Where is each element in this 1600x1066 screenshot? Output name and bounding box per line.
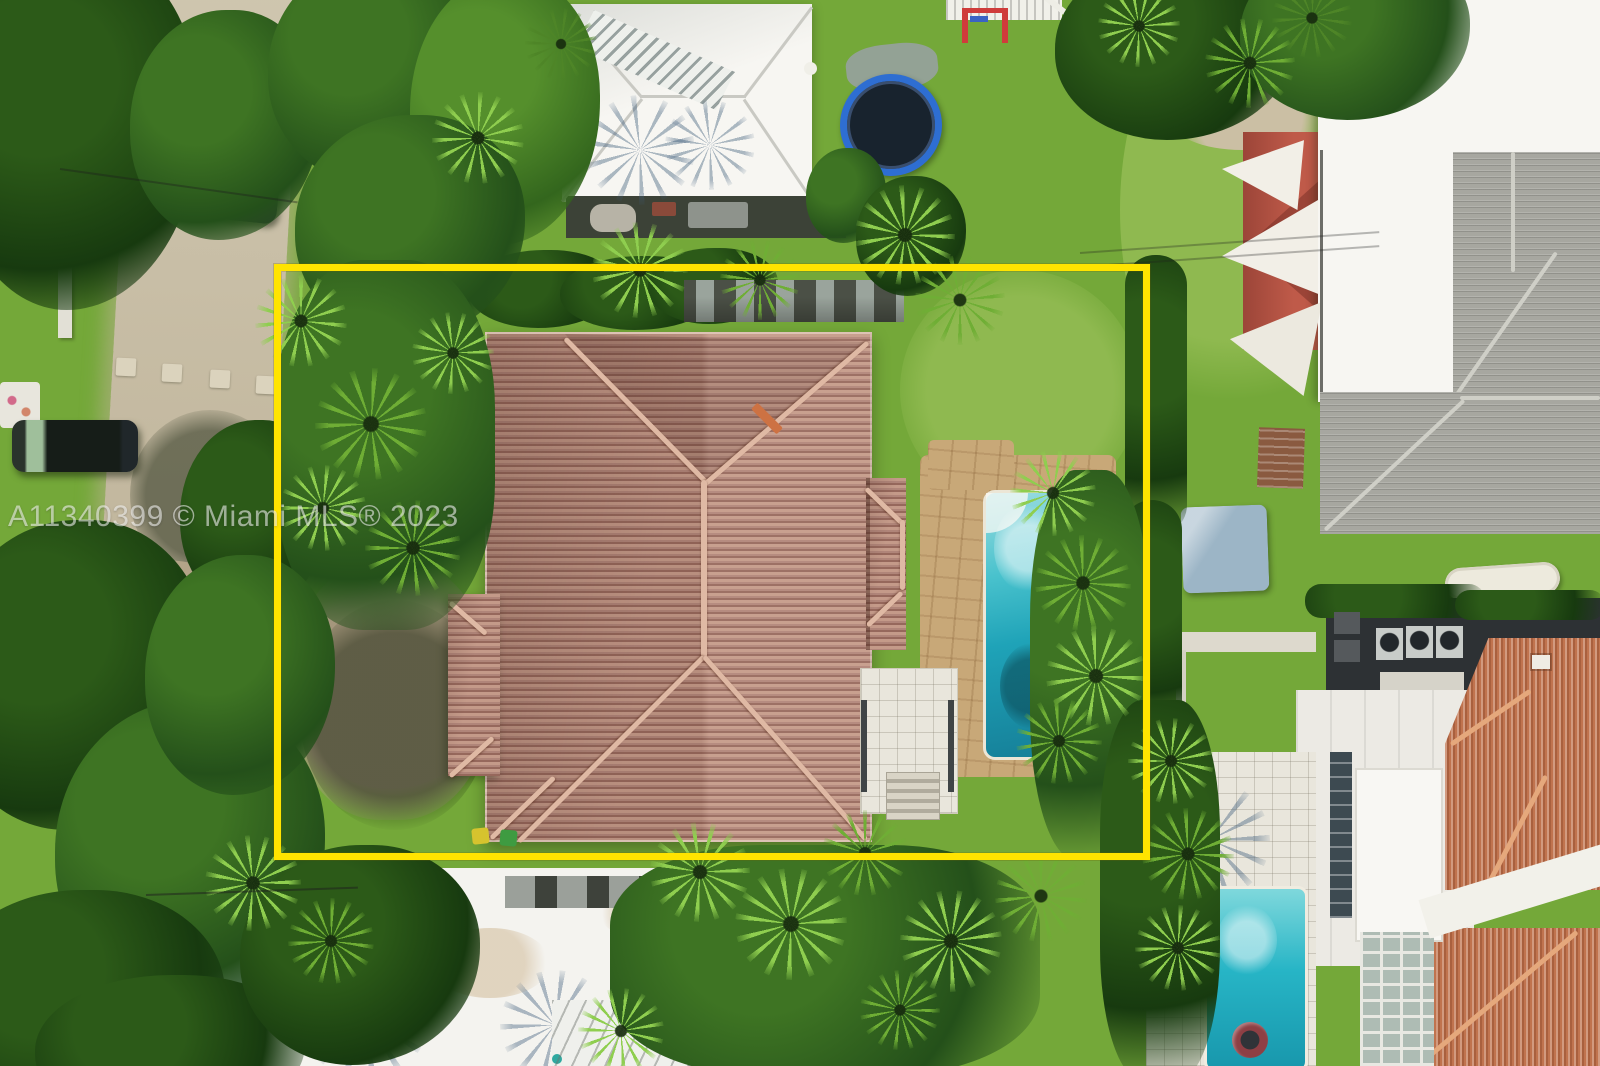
roof-hip-line (1422, 930, 1578, 1062)
satellite-dish (804, 62, 817, 75)
atrium-skylight (1360, 932, 1434, 1066)
patio-item-red (652, 202, 676, 216)
right-house-gray-band (1320, 392, 1600, 534)
concrete-pad (162, 363, 183, 382)
pool-sparkle (1217, 905, 1277, 975)
roof-vent (1334, 640, 1360, 662)
clerestory-glass (1330, 752, 1352, 918)
right-house-gray-roof (1453, 152, 1600, 418)
mls-watermark-text: A11340399 © Miami MLS® 2023 (8, 500, 459, 533)
roof-hip-line (1324, 399, 1466, 532)
palm-tree (1135, 905, 1221, 991)
ac-unit (1406, 626, 1433, 658)
palm-tree (995, 850, 1087, 942)
palm-tree (525, 8, 597, 80)
roof-hip-line (1451, 251, 1558, 401)
palm-tree (432, 92, 524, 184)
patio-item-gray (688, 202, 748, 228)
aerial-photo: A11340399 © Miami MLS® 2023 (0, 0, 1600, 1066)
roof-hip-line (1511, 152, 1515, 272)
concrete-pad (210, 369, 231, 388)
orange-roof-lower (1424, 928, 1600, 1066)
property-boundary-outline (274, 264, 1150, 860)
palm-tree (735, 868, 847, 980)
palm-tree (578, 988, 664, 1066)
pool-float (1232, 1022, 1268, 1058)
metal-shed (1257, 427, 1305, 489)
ac-unit (1376, 628, 1403, 660)
blue-tarp-shed (1181, 505, 1270, 594)
palm-shadow-on-roof (665, 100, 755, 190)
roof-edge-line (1320, 150, 1323, 400)
roof-vent (1334, 612, 1360, 634)
swing-seat (970, 16, 988, 22)
hedge-line (1455, 590, 1600, 620)
ac-unit (1436, 626, 1463, 658)
palm-tree (288, 898, 374, 984)
mls-watermark: A11340399 © Miami MLS® 2023 (8, 500, 459, 534)
roof-ridge-line (1460, 396, 1600, 400)
palm-tree (1142, 808, 1234, 900)
parked-suv (12, 420, 138, 472)
palm-tree (860, 970, 940, 1050)
swing-set (962, 8, 1008, 43)
white-wall (1176, 632, 1316, 652)
chimney-white (1532, 655, 1550, 669)
concrete-pad (116, 357, 137, 376)
